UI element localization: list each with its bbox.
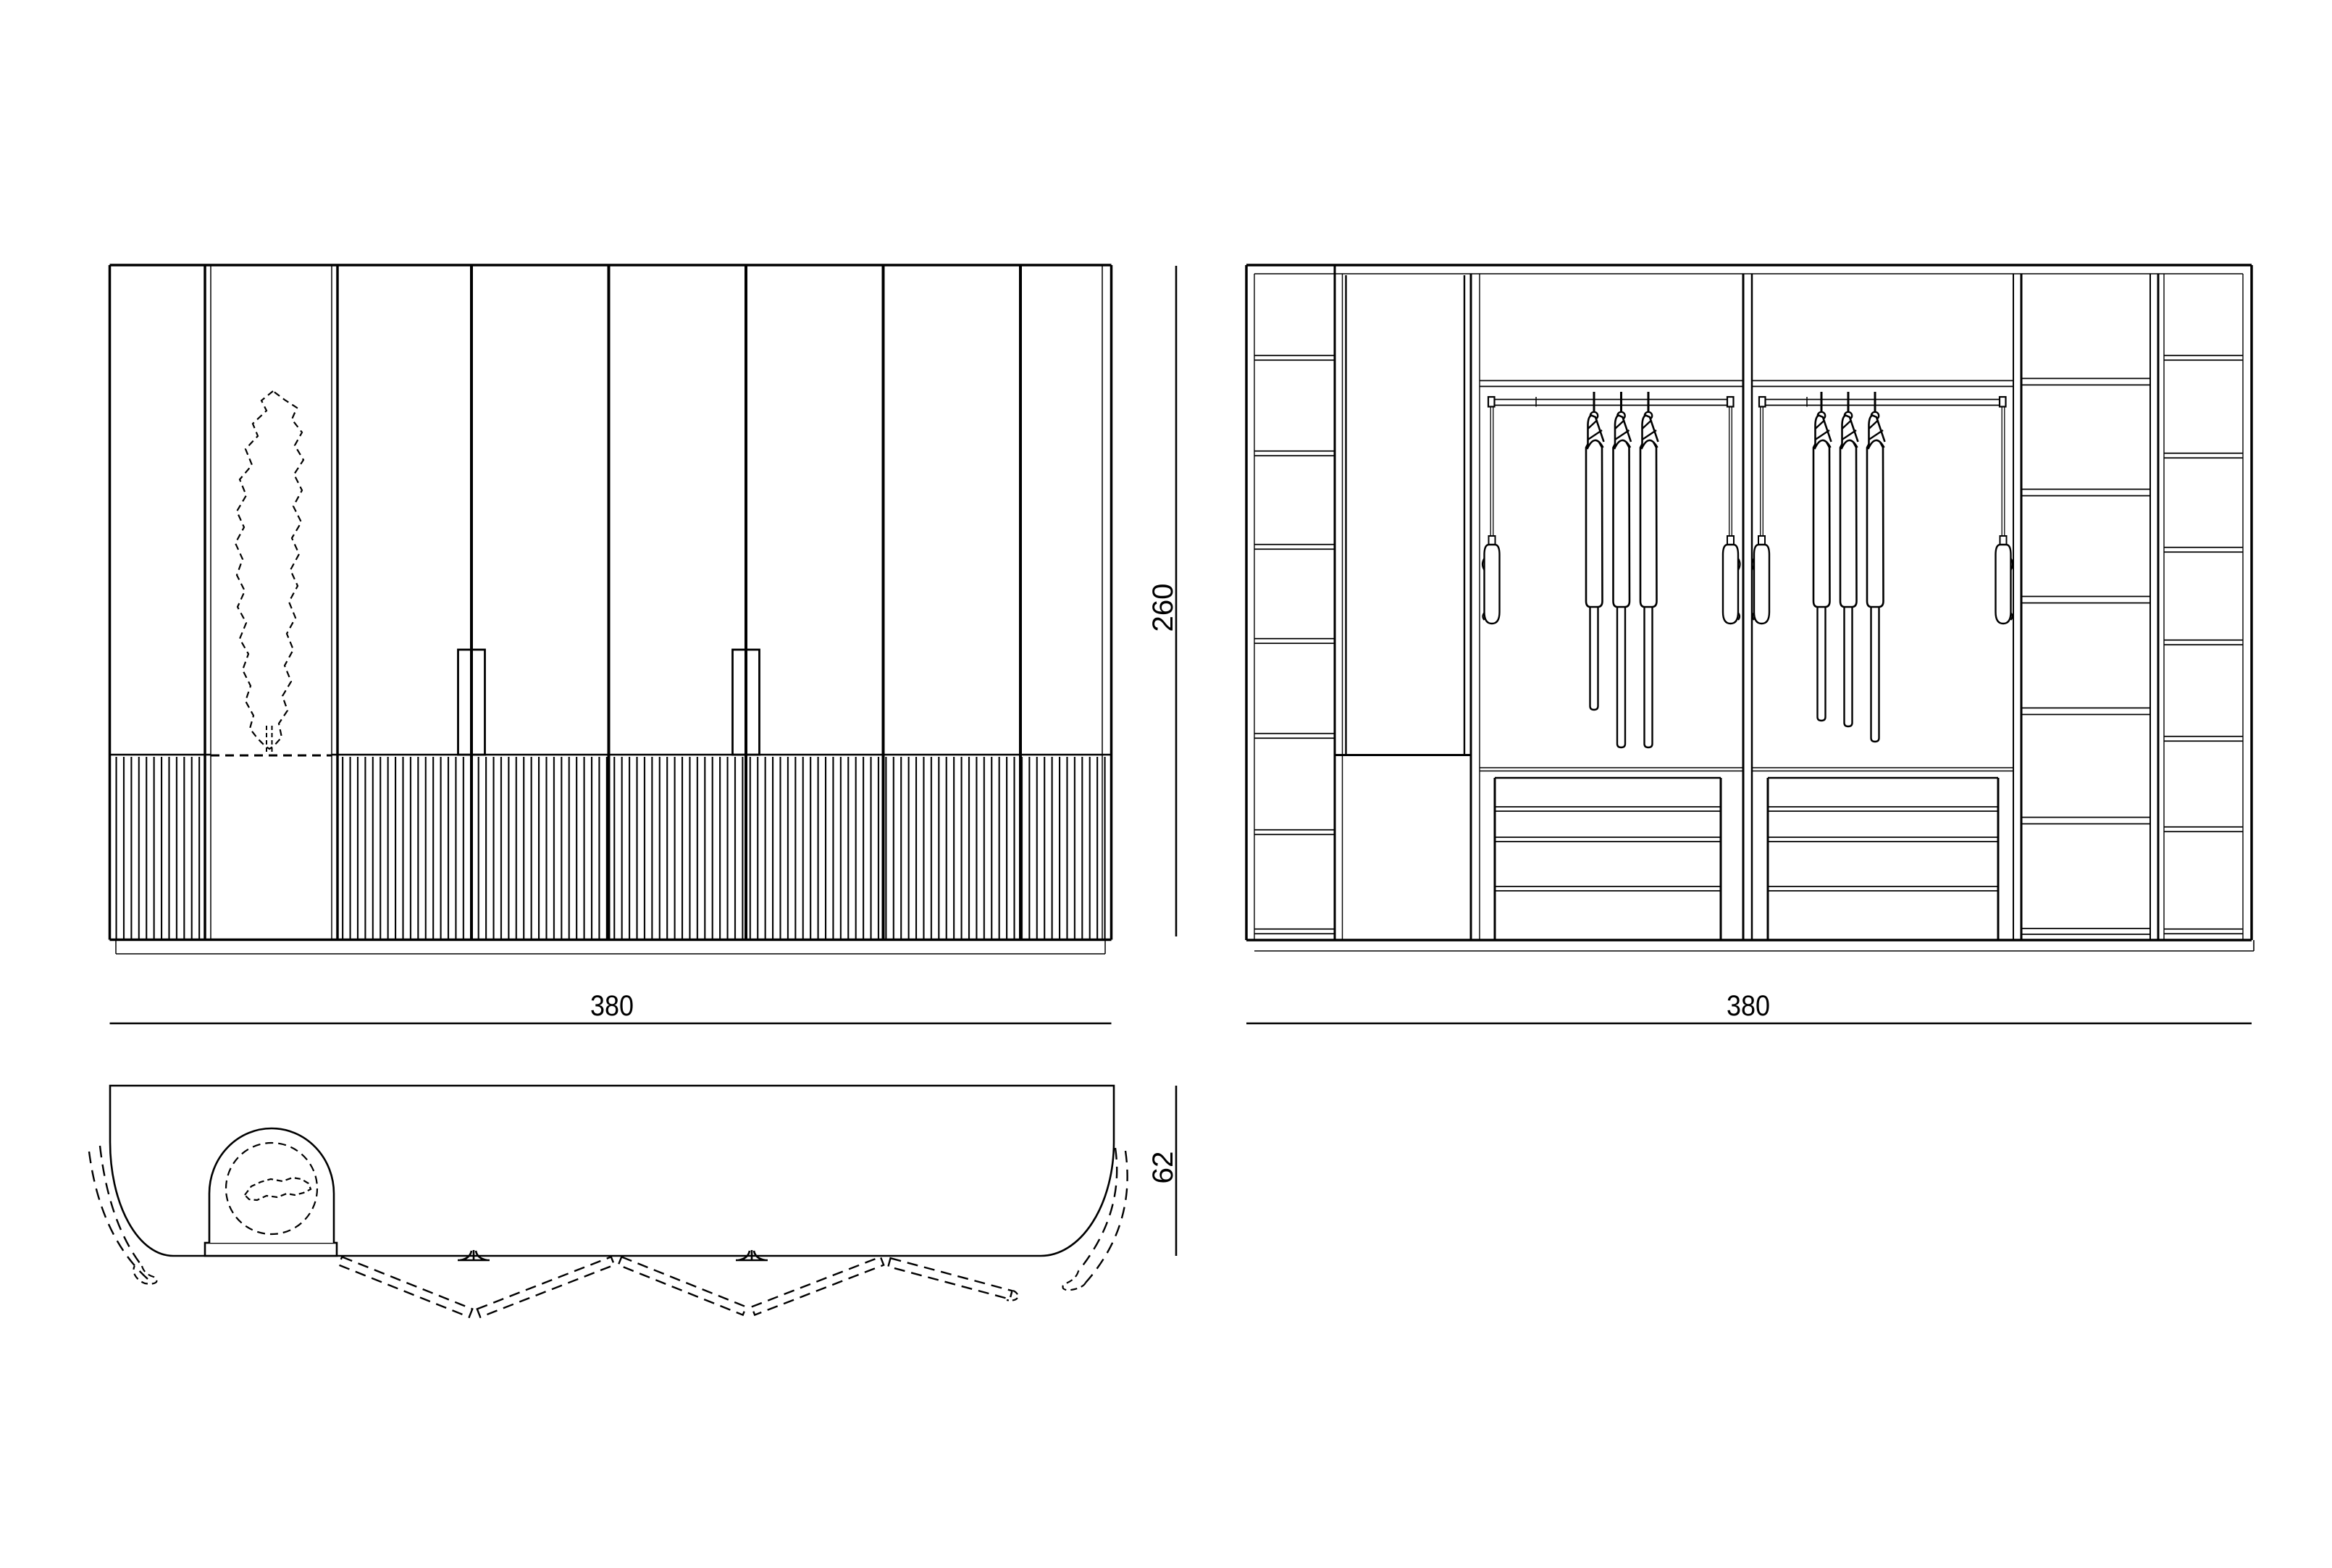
svg-text:380: 380	[590, 990, 634, 1022]
svg-text:380: 380	[1727, 990, 1770, 1022]
svg-text:260: 260	[1147, 584, 1179, 632]
svg-text:62: 62	[1147, 1152, 1179, 1184]
